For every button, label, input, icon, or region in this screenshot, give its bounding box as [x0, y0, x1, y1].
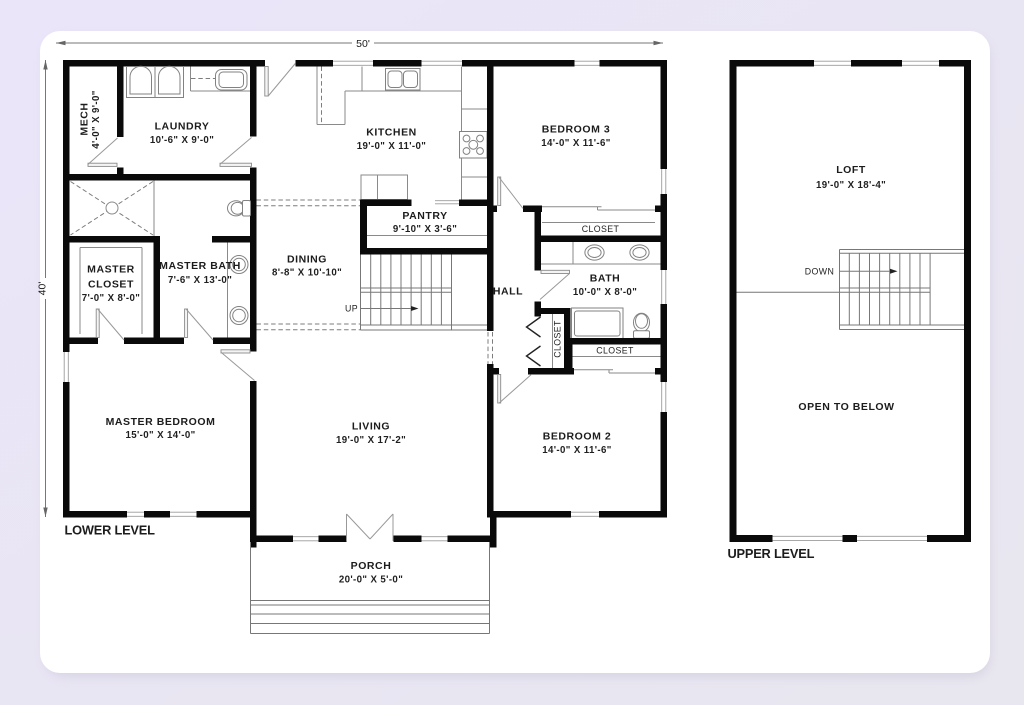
- svg-text:14'-0" X 11'-6": 14'-0" X 11'-6": [541, 138, 611, 149]
- svg-text:BATH: BATH: [590, 273, 621, 285]
- svg-text:8'-8" X 10'-10": 8'-8" X 10'-10": [272, 268, 342, 279]
- svg-text:4'-0" X 9'-0": 4'-0" X 9'-0": [91, 90, 102, 149]
- svg-text:HALL: HALL: [493, 286, 523, 298]
- svg-text:LOFT: LOFT: [836, 164, 866, 176]
- svg-text:19'-0" X 11'-0": 19'-0" X 11'-0": [357, 141, 427, 152]
- svg-text:10'-0" X 8'-0": 10'-0" X 8'-0": [573, 287, 637, 298]
- svg-text:MASTER BEDROOM: MASTER BEDROOM: [106, 416, 216, 428]
- svg-text:CLOSET: CLOSET: [553, 320, 563, 358]
- svg-text:MASTER BATH: MASTER BATH: [159, 260, 241, 272]
- svg-text:PORCH: PORCH: [351, 560, 392, 572]
- svg-text:UP: UP: [345, 304, 358, 314]
- svg-text:15'-0" X 14'-0": 15'-0" X 14'-0": [125, 430, 195, 441]
- svg-text:BEDROOM 2: BEDROOM 2: [543, 431, 612, 443]
- svg-text:LOWER LEVEL: LOWER LEVEL: [65, 523, 156, 538]
- svg-text:CLOSET: CLOSET: [88, 279, 134, 291]
- svg-text:10'-6" X 9'-0": 10'-6" X 9'-0": [150, 135, 214, 146]
- svg-text:PANTRY: PANTRY: [402, 210, 447, 222]
- svg-text:20'-0" X 5'-0": 20'-0" X 5'-0": [339, 575, 403, 586]
- svg-text:LIVING: LIVING: [352, 421, 390, 433]
- svg-text:40': 40': [37, 282, 49, 296]
- svg-text:LAUNDRY: LAUNDRY: [155, 121, 210, 133]
- svg-text:50': 50': [356, 38, 370, 50]
- svg-text:14'-0" X 11'-6": 14'-0" X 11'-6": [542, 445, 612, 456]
- svg-text:OPEN TO BELOW: OPEN TO BELOW: [798, 401, 894, 413]
- svg-text:MASTER: MASTER: [87, 264, 135, 276]
- svg-text:BEDROOM 3: BEDROOM 3: [542, 124, 611, 136]
- svg-text:DOWN: DOWN: [805, 266, 834, 276]
- svg-text:CLOSET: CLOSET: [582, 224, 620, 234]
- svg-text:DINING: DINING: [287, 254, 327, 266]
- svg-text:19'-0" X 18'-4": 19'-0" X 18'-4": [816, 180, 886, 191]
- svg-text:19'-0" X 17'-2": 19'-0" X 17'-2": [336, 435, 406, 446]
- svg-text:7'-6" X 13'-0": 7'-6" X 13'-0": [168, 275, 232, 286]
- svg-text:KITCHEN: KITCHEN: [366, 127, 417, 139]
- svg-text:UPPER LEVEL: UPPER LEVEL: [728, 546, 815, 561]
- svg-text:CLOSET: CLOSET: [596, 346, 634, 356]
- svg-text:7'-0" X 8'-0": 7'-0" X 8'-0": [82, 293, 141, 304]
- svg-text:9'-10" X 3'-6": 9'-10" X 3'-6": [393, 224, 457, 235]
- svg-text:MECH: MECH: [79, 102, 91, 135]
